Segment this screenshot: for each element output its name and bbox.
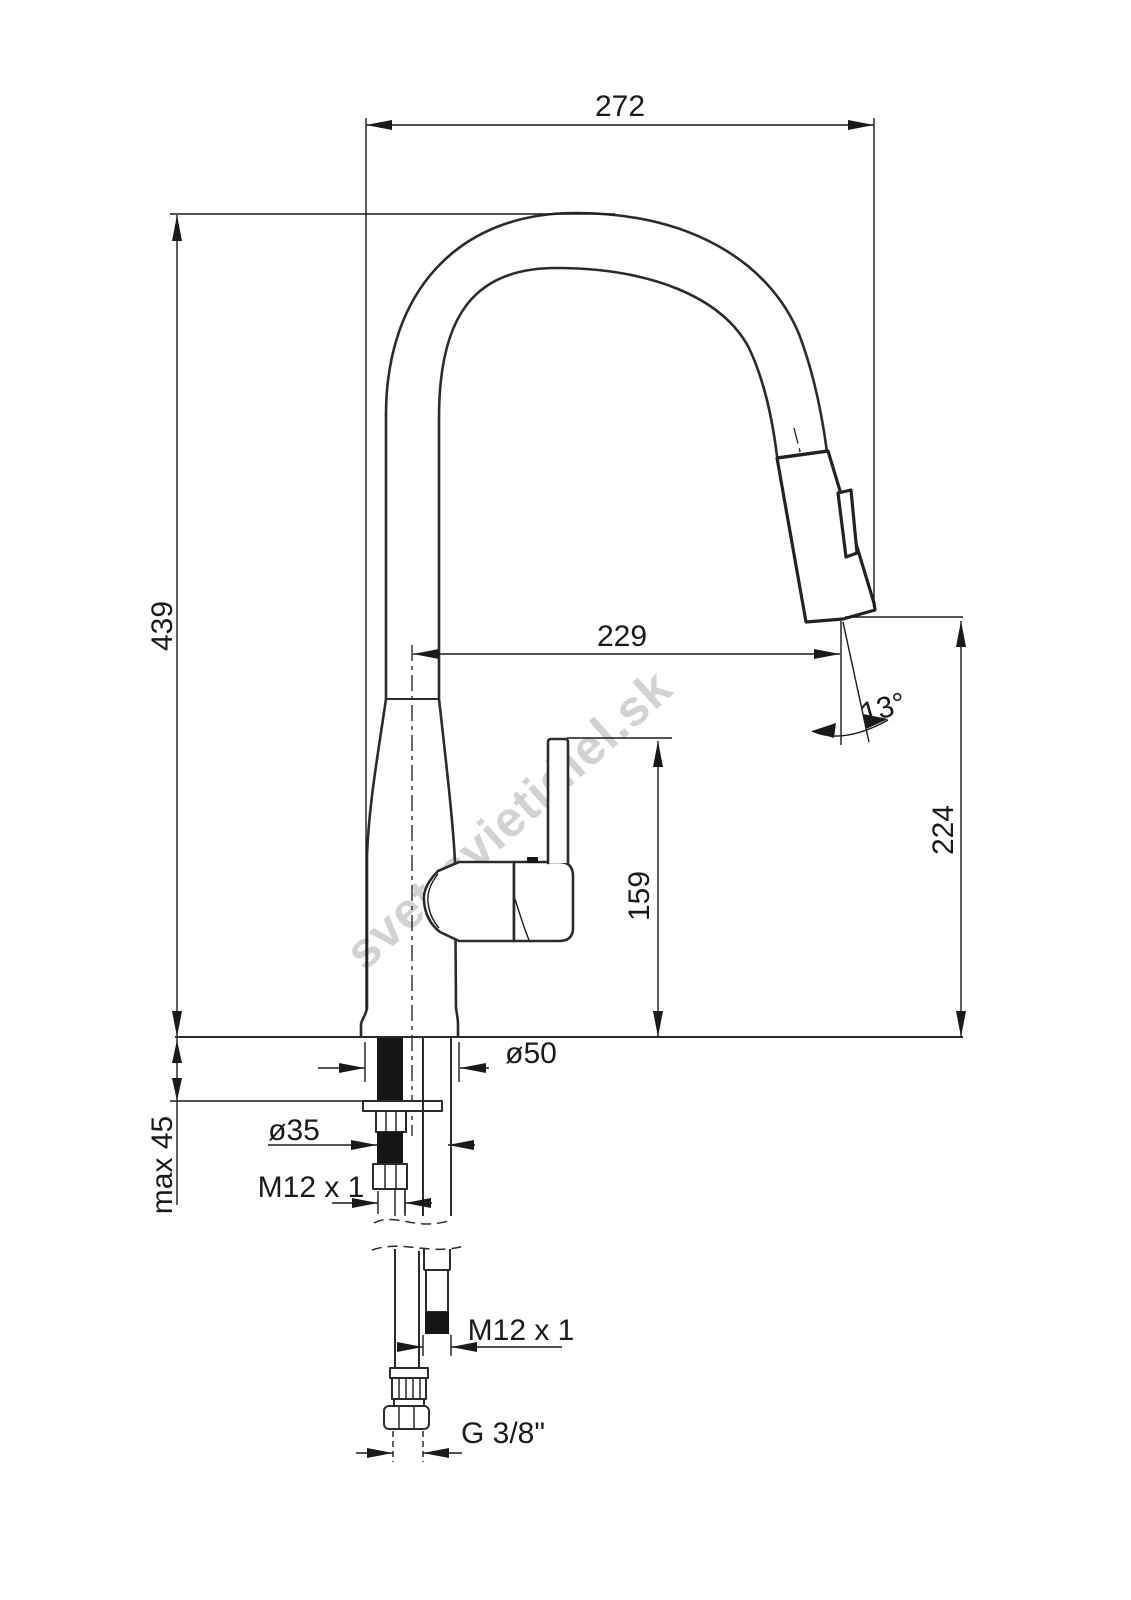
dim-m12-upper-label: M12 x 1	[258, 1171, 365, 1204]
hose-fitting	[426, 1270, 448, 1312]
break-line-lower	[372, 1245, 467, 1250]
dim-50-line	[318, 1042, 489, 1082]
threaded-stud-lower	[377, 1132, 403, 1164]
hose-thread-black	[425, 1312, 449, 1334]
hose-collar	[390, 1368, 428, 1378]
base-flare-left	[361, 1008, 367, 1036]
handle-body	[514, 862, 573, 941]
pullout-hose-upper	[423, 1038, 451, 1216]
dim-439-label: 439	[146, 601, 179, 651]
mounting-nut-2	[373, 1164, 407, 1189]
dim-229-label: 229	[597, 620, 647, 653]
dim-g38-ext	[393, 1431, 423, 1462]
dim-50-label: ø50	[505, 1037, 557, 1070]
dim-13deg-label: 13°	[857, 687, 910, 731]
supply-hex-nut	[384, 1406, 429, 1429]
pullout-hose-lower	[424, 1249, 450, 1270]
mounting-nut-1	[376, 1111, 406, 1132]
technical-drawing-page: svet-svietidiel.sk	[0, 0, 1131, 1600]
mounting-washer-plate	[363, 1101, 442, 1111]
dim-35-label: ø35	[268, 1114, 320, 1147]
handle-top-mark	[527, 857, 538, 863]
stud-rod-stub	[395, 1189, 405, 1216]
spray-head	[777, 428, 875, 622]
dim-224-label: 224	[927, 805, 960, 855]
faucet-dimension-drawing: svet-svietidiel.sk	[0, 0, 1131, 1600]
hose-step	[394, 1399, 424, 1406]
dim-max45-label: max 45	[146, 1116, 179, 1214]
break-line-upper	[374, 1219, 448, 1224]
dim-m12-lower-label: M12 x 1	[468, 1314, 575, 1347]
handle-lever	[548, 739, 568, 863]
dim-272-label: 272	[595, 90, 645, 123]
threaded-stud-upper	[377, 1038, 403, 1101]
spray-head-body	[777, 451, 875, 622]
spout-inner-curve	[439, 268, 777, 456]
hose-ribbed-section	[392, 1378, 426, 1399]
dim-159-label: 159	[623, 871, 656, 921]
base-flare-right	[456, 1008, 458, 1036]
dim-g38-label: G 3/8"	[461, 1417, 545, 1450]
below-deck-assembly	[175, 1037, 963, 1429]
faucet-outline	[361, 213, 827, 1136]
